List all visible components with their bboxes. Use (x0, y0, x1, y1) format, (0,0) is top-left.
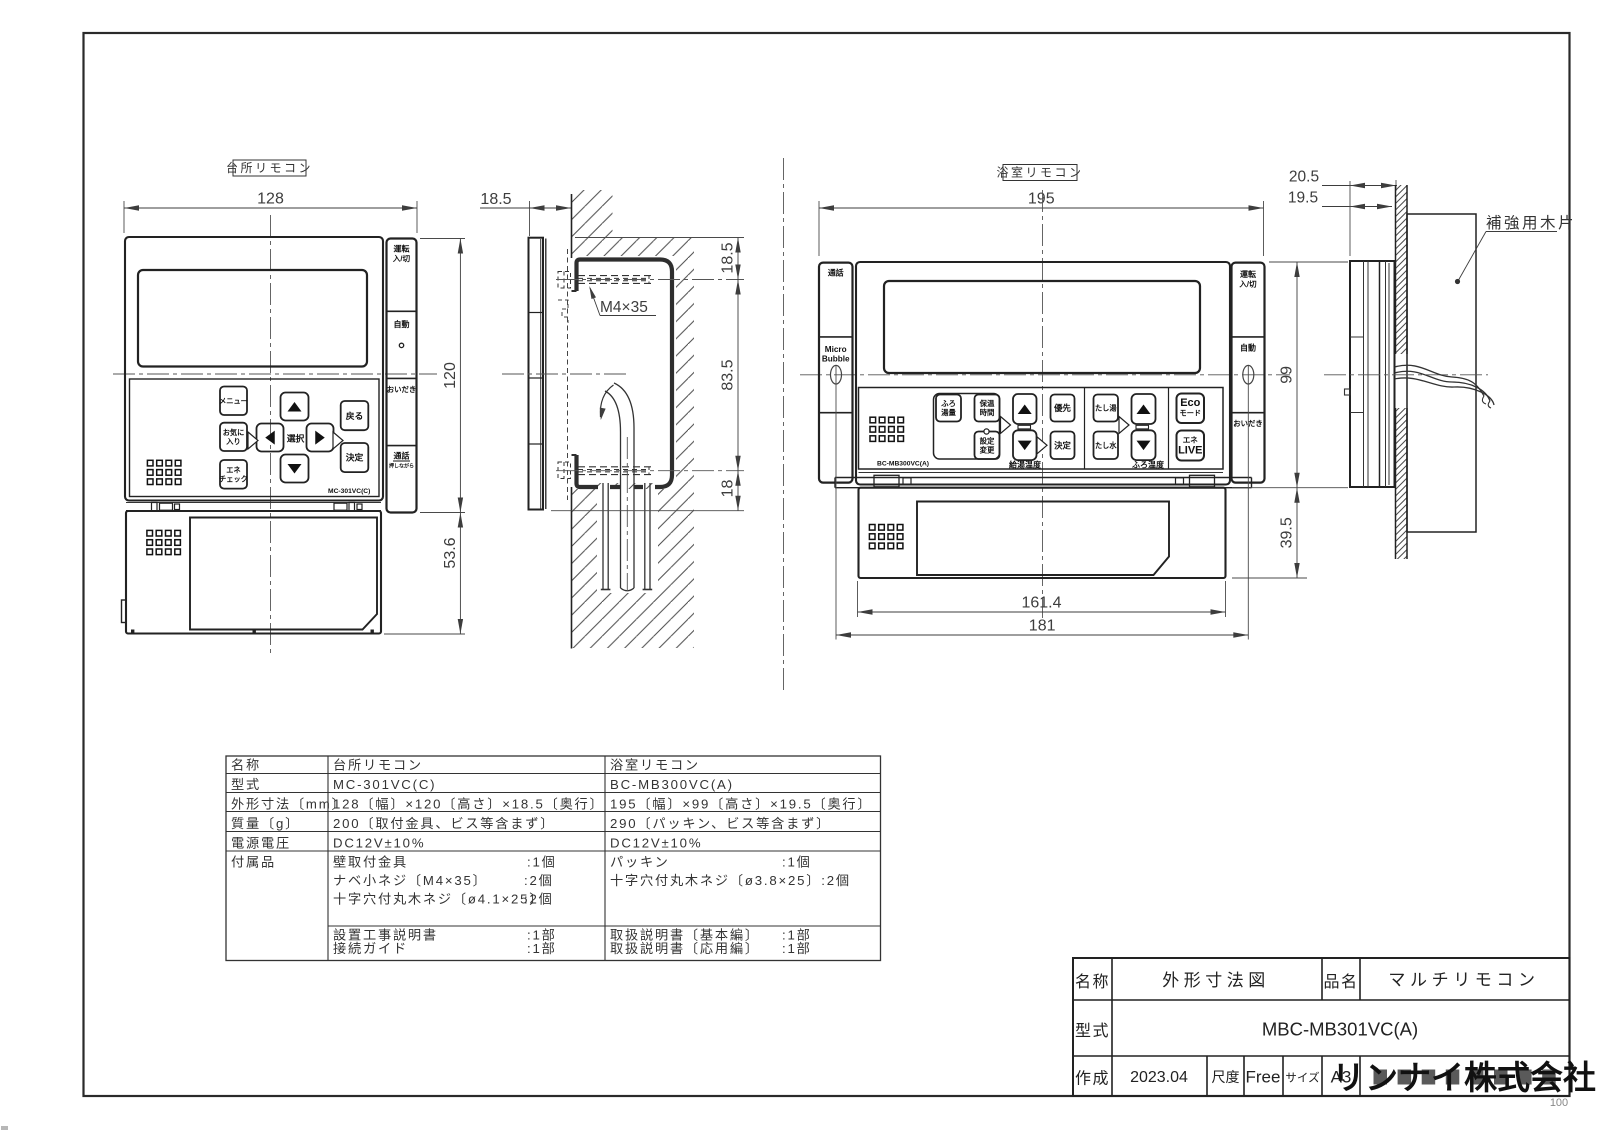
svg-text:BC-MB300VC(A): BC-MB300VC(A) (877, 461, 929, 468)
svg-text:181: 181 (1029, 618, 1056, 635)
svg-text:チェック: チェック (219, 474, 248, 483)
svg-text:電源電圧: 電源電圧 (231, 836, 291, 851)
svg-text::1部: :1部 (527, 941, 557, 956)
svg-text:保温: 保温 (979, 399, 995, 408)
svg-text:18: 18 (720, 480, 737, 498)
svg-text:120: 120 (442, 362, 459, 389)
svg-text:エネ: エネ (226, 465, 240, 474)
svg-text:台所リモコン: 台所リモコン (226, 160, 313, 175)
svg-text::2個: :2個 (524, 892, 554, 907)
svg-text:入/切: 入/切 (392, 253, 411, 263)
svg-text:設定: 設定 (980, 436, 995, 445)
svg-text:浴室リモコン: 浴室リモコン (610, 757, 700, 773)
svg-text:195〔幅〕×99〔高さ〕×19.5〔奥行〕: 195〔幅〕×99〔高さ〕×19.5〔奥行〕 (610, 796, 872, 812)
svg-text:ふろ: ふろ (941, 399, 956, 408)
svg-text:MBC-MB301VC(A): MBC-MB301VC(A) (1262, 1019, 1418, 1040)
svg-text:マルチリモコン: マルチリモコン (1388, 971, 1539, 990)
svg-text:MC-301VC(C): MC-301VC(C) (328, 488, 370, 495)
svg-text:壁取付金具: 壁取付金具 (333, 855, 408, 870)
svg-text:128〔幅〕×120〔高さ〕×18.5〔奥行〕: 128〔幅〕×120〔高さ〕×18.5〔奥行〕 (333, 796, 605, 812)
svg-text:運転: 運転 (1240, 269, 1256, 279)
svg-text:99: 99 (1279, 366, 1296, 384)
svg-text:128: 128 (257, 191, 284, 208)
svg-text:Eco: Eco (1180, 397, 1200, 409)
svg-text:39.5: 39.5 (1279, 517, 1296, 548)
svg-text:メニュー: メニュー (219, 396, 248, 405)
svg-text:DC12V±10%: DC12V±10% (333, 836, 425, 851)
svg-text:83.5: 83.5 (720, 359, 737, 390)
svg-text:100: 100 (1550, 1097, 1568, 1109)
svg-text:290〔パッキン、ビス等含まず〕: 290〔パッキン、ビス等含まず〕 (610, 815, 831, 831)
svg-text:戻る: 戻る (345, 410, 364, 421)
svg-text:サイズ: サイズ (1285, 1071, 1319, 1085)
svg-text:パッキン: パッキン (610, 855, 670, 870)
svg-text:自動: 自動 (394, 319, 410, 329)
svg-text:リンナイ株式会社: リンナイ株式会社 (1332, 1059, 1596, 1096)
svg-text::1部: :1部 (782, 941, 812, 956)
svg-text:時間: 時間 (980, 408, 995, 417)
svg-text:161.4: 161.4 (1021, 595, 1061, 612)
svg-text:20.5: 20.5 (1289, 169, 1319, 186)
svg-text:自動: 自動 (1240, 343, 1256, 353)
svg-text:お気に: お気に (223, 428, 245, 437)
svg-text:200〔取付金具、ビス等含まず〕: 200〔取付金具、ビス等含まず〕 (333, 815, 555, 831)
svg-text:18.5: 18.5 (480, 191, 511, 208)
svg-text:品名: 品名 (1323, 973, 1358, 991)
svg-text:取扱説明書〔応用編〕: 取扱説明書〔応用編〕 (610, 941, 760, 956)
svg-text:浴室リモコン: 浴室リモコン (996, 165, 1083, 180)
svg-text:押しながら: 押しながら (389, 463, 414, 470)
svg-text:おいだき: おいだき (387, 385, 417, 394)
svg-text:外形寸法〔mm〕: 外形寸法〔mm〕 (231, 797, 347, 812)
svg-text:入/切: 入/切 (1238, 279, 1257, 289)
svg-text:たし水: たし水 (1095, 441, 1117, 450)
svg-text:給湯温度: 給湯温度 (1009, 460, 1042, 470)
svg-text:LIVE: LIVE (1178, 445, 1202, 457)
svg-text:エネ: エネ (1183, 436, 1199, 445)
svg-text:18.5: 18.5 (720, 242, 737, 273)
svg-text:質量〔g〕: 質量〔g〕 (231, 816, 300, 831)
svg-text:決定: 決定 (346, 452, 364, 463)
svg-text:運転: 運転 (394, 244, 410, 254)
svg-text:195: 195 (1028, 191, 1055, 208)
svg-text:外形寸法図: 外形寸法図 (1162, 971, 1270, 990)
svg-text::2個: :2個 (524, 873, 554, 888)
svg-text:M4×35: M4×35 (600, 299, 648, 316)
svg-text:たし湯: たし湯 (1095, 404, 1117, 413)
svg-text:十字穴付丸木ネジ〔ø3.8×25〕:2個: 十字穴付丸木ネジ〔ø3.8×25〕:2個 (610, 873, 851, 888)
svg-text::1個: :1個 (782, 855, 812, 870)
svg-text:湯量: 湯量 (941, 408, 956, 417)
svg-text:入り: 入り (225, 437, 240, 446)
svg-text:モード: モード (1180, 409, 1202, 418)
svg-text:通話: 通話 (828, 268, 844, 278)
svg-text:付属品: 付属品 (231, 855, 276, 870)
svg-text:2023.04: 2023.04 (1130, 1069, 1188, 1086)
svg-text:補強用木片: 補強用木片 (1486, 214, 1576, 232)
svg-text:Bubble: Bubble (822, 355, 850, 364)
svg-text:53.6: 53.6 (442, 537, 459, 568)
svg-text:ナベ小ネジ〔M4×35〕: ナベ小ネジ〔M4×35〕 (333, 873, 488, 888)
svg-text:Micro: Micro (825, 345, 847, 354)
svg-text:通話: 通話 (394, 451, 410, 461)
svg-text:尺度: 尺度 (1212, 1069, 1240, 1085)
svg-text:Free: Free (1246, 1068, 1281, 1087)
svg-text:接続ガイド: 接続ガイド (333, 940, 408, 956)
svg-text:名称: 名称 (1075, 973, 1110, 991)
svg-text:ふろ温度: ふろ温度 (1132, 460, 1165, 470)
svg-text:BC-MB300VC(A): BC-MB300VC(A) (610, 777, 734, 792)
svg-text:名称: 名称 (231, 758, 261, 773)
svg-text:台所リモコン: 台所リモコン (333, 758, 423, 773)
svg-text:十字穴付丸木ネジ〔ø4.1×25〕: 十字穴付丸木ネジ〔ø4.1×25〕 (333, 892, 544, 907)
svg-text:選択: 選択 (287, 432, 305, 443)
svg-text:MC-301VC(C): MC-301VC(C) (333, 777, 436, 792)
svg-text:決定: 決定 (1054, 440, 1071, 450)
svg-text:型式: 型式 (231, 777, 261, 792)
svg-text:型式: 型式 (1075, 1022, 1110, 1040)
svg-text:DC12V±10%: DC12V±10% (610, 836, 702, 851)
svg-text:作成: 作成 (1075, 1070, 1110, 1088)
svg-text:優先: 優先 (1053, 403, 1071, 413)
svg-text::1個: :1個 (527, 855, 557, 870)
svg-text:19.5: 19.5 (1288, 190, 1318, 207)
svg-text:変更: 変更 (980, 445, 995, 454)
